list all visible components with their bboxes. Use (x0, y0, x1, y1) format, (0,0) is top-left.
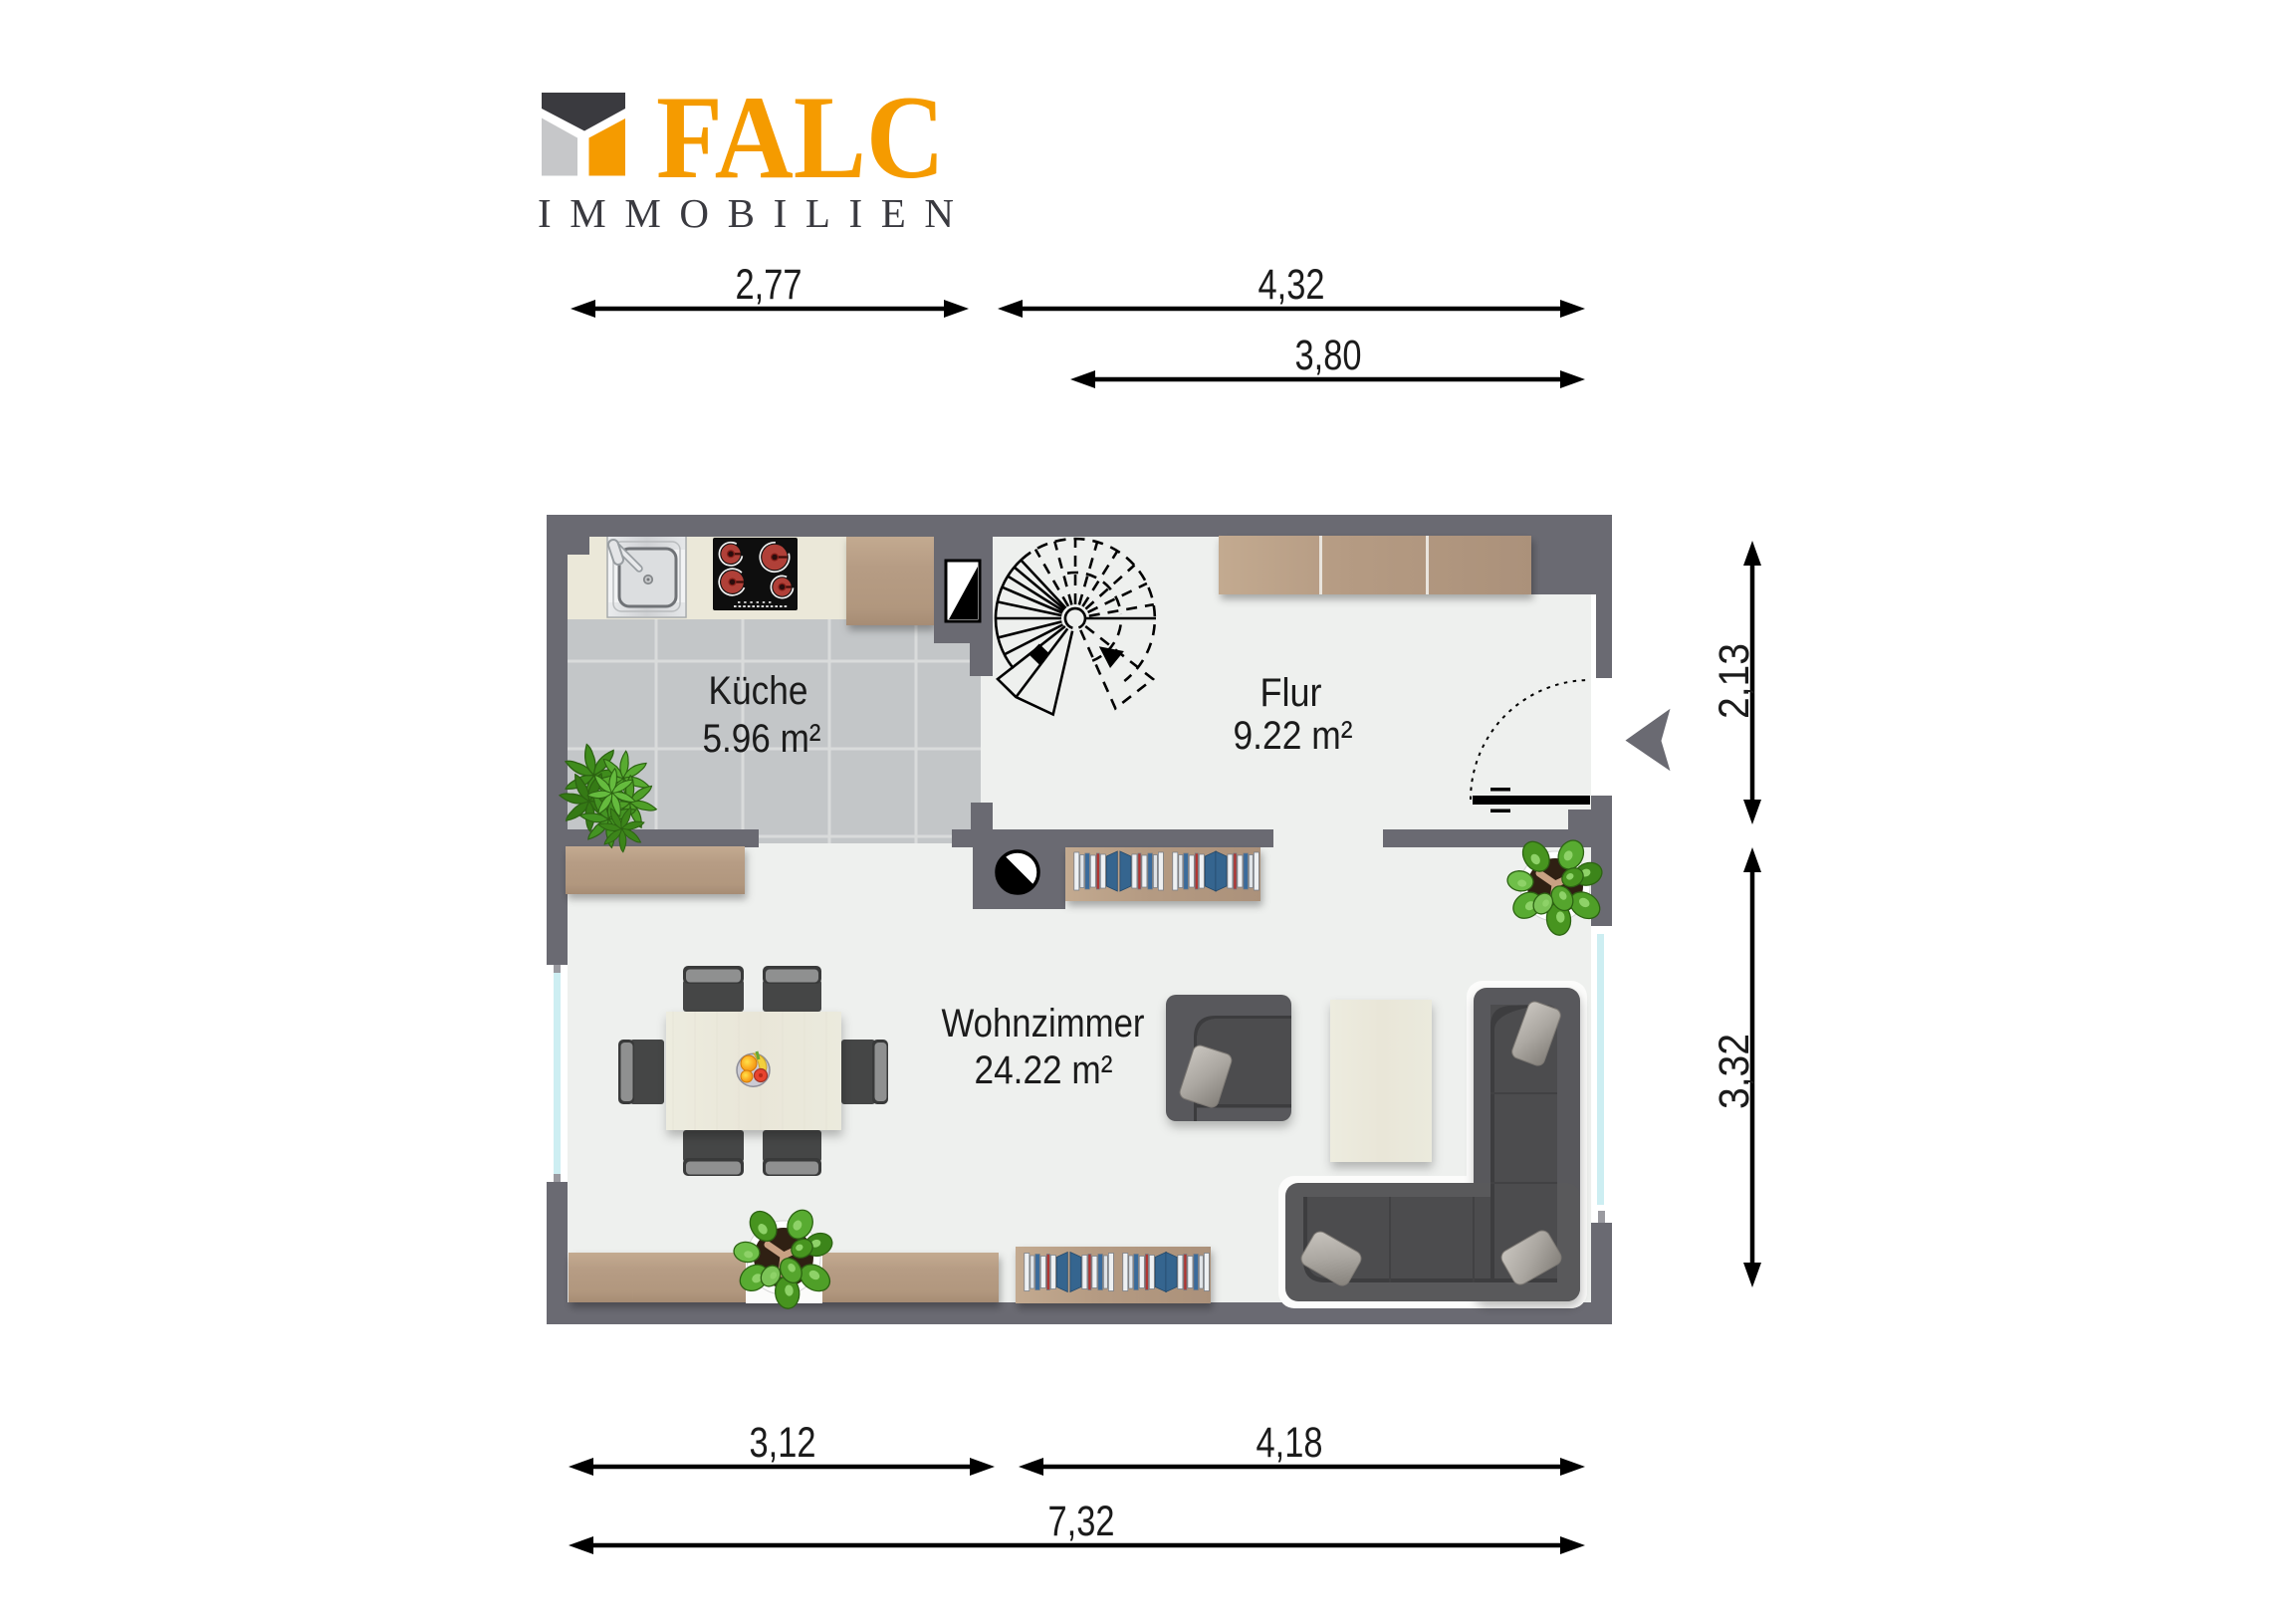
svg-text:3,32: 3,32 (1711, 1034, 1758, 1109)
svg-text:2,13: 2,13 (1711, 643, 1758, 719)
svg-text:5.96 m²: 5.96 m² (703, 717, 821, 761)
svg-text:IMMOBILIEN: IMMOBILIEN (538, 190, 954, 236)
svg-text:Flur: Flur (1260, 671, 1322, 715)
svg-text:2,77: 2,77 (736, 261, 802, 309)
svg-text:7,32: 7,32 (1048, 1498, 1115, 1545)
svg-text:3,80: 3,80 (1295, 332, 1362, 379)
svg-text:FALC: FALC (656, 71, 945, 203)
svg-text:Wohnzimmer: Wohnzimmer (942, 1002, 1145, 1045)
svg-text:3,12: 3,12 (750, 1419, 816, 1467)
svg-text:4,32: 4,32 (1259, 261, 1325, 309)
svg-text:24.22 m²: 24.22 m² (975, 1048, 1113, 1092)
svg-text:4,18: 4,18 (1257, 1419, 1323, 1467)
svg-text:Küche: Küche (709, 669, 808, 713)
svg-text:9.22 m²: 9.22 m² (1234, 714, 1353, 758)
